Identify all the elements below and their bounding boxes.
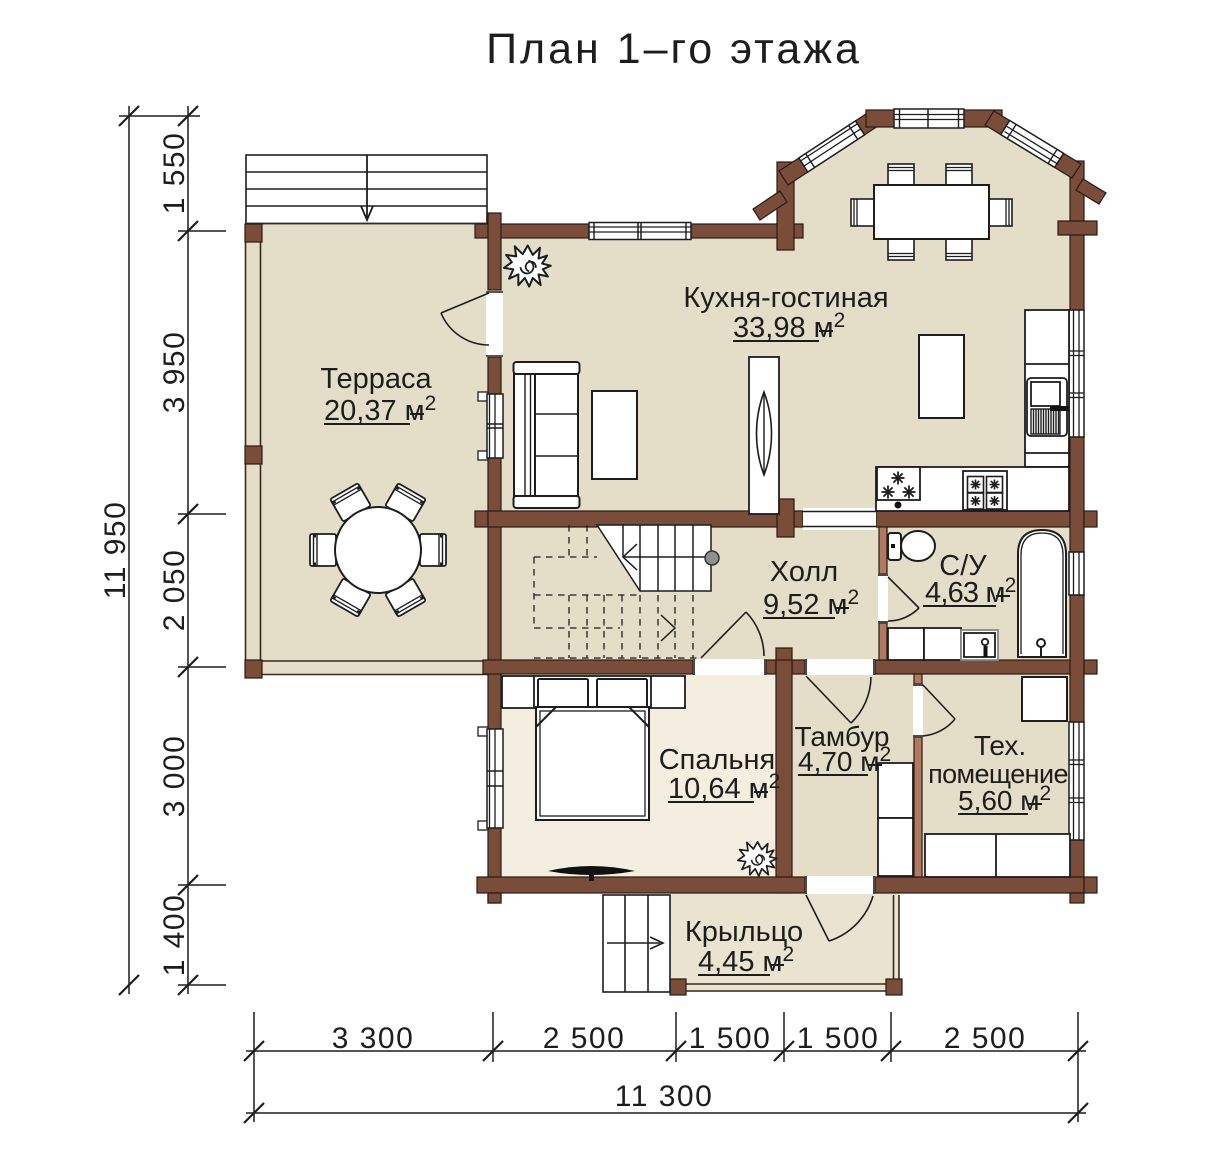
svg-text:1 500: 1 500 [689, 1022, 772, 1055]
svg-text:1 550: 1 550 [158, 132, 191, 215]
svg-text:2 500: 2 500 [944, 1022, 1027, 1055]
svg-text:3 950: 3 950 [158, 331, 191, 414]
svg-text:3 000: 3 000 [158, 735, 191, 818]
svg-text:20,37 м2: 20,37 м2 [324, 392, 436, 427]
svg-text:2 050: 2 050 [158, 549, 191, 632]
svg-text:Тех.: Тех. [974, 730, 1026, 761]
svg-text:11 300: 11 300 [615, 1080, 714, 1113]
svg-text:11 950: 11 950 [99, 501, 132, 600]
svg-text:План 1–го этажа: План 1–го этажа [486, 25, 862, 73]
svg-text:Холл: Холл [770, 556, 838, 588]
svg-text:3 300: 3 300 [332, 1022, 415, 1055]
svg-text:9,52 м2: 9,52 м2 [763, 586, 859, 621]
svg-text:1 500: 1 500 [797, 1022, 880, 1055]
svg-text:1 400: 1 400 [158, 894, 191, 977]
svg-text:Терраса: Терраса [320, 363, 432, 395]
svg-text:2 500: 2 500 [543, 1022, 626, 1055]
svg-text:4,70 м2: 4,70 м2 [798, 743, 891, 777]
svg-text:10,64 м2: 10,64 м2 [668, 770, 780, 805]
svg-text:4,45 м2: 4,45 м2 [698, 943, 794, 978]
svg-text:33,98 м2: 33,98 м2 [733, 309, 845, 344]
svg-text:Кухня-гостиная: Кухня-гостиная [683, 282, 888, 314]
svg-text:Спальня: Спальня [659, 744, 776, 776]
svg-text:5,60 м2: 5,60 м2 [958, 782, 1051, 816]
svg-text:4,63 м2: 4,63 м2 [925, 574, 1016, 609]
